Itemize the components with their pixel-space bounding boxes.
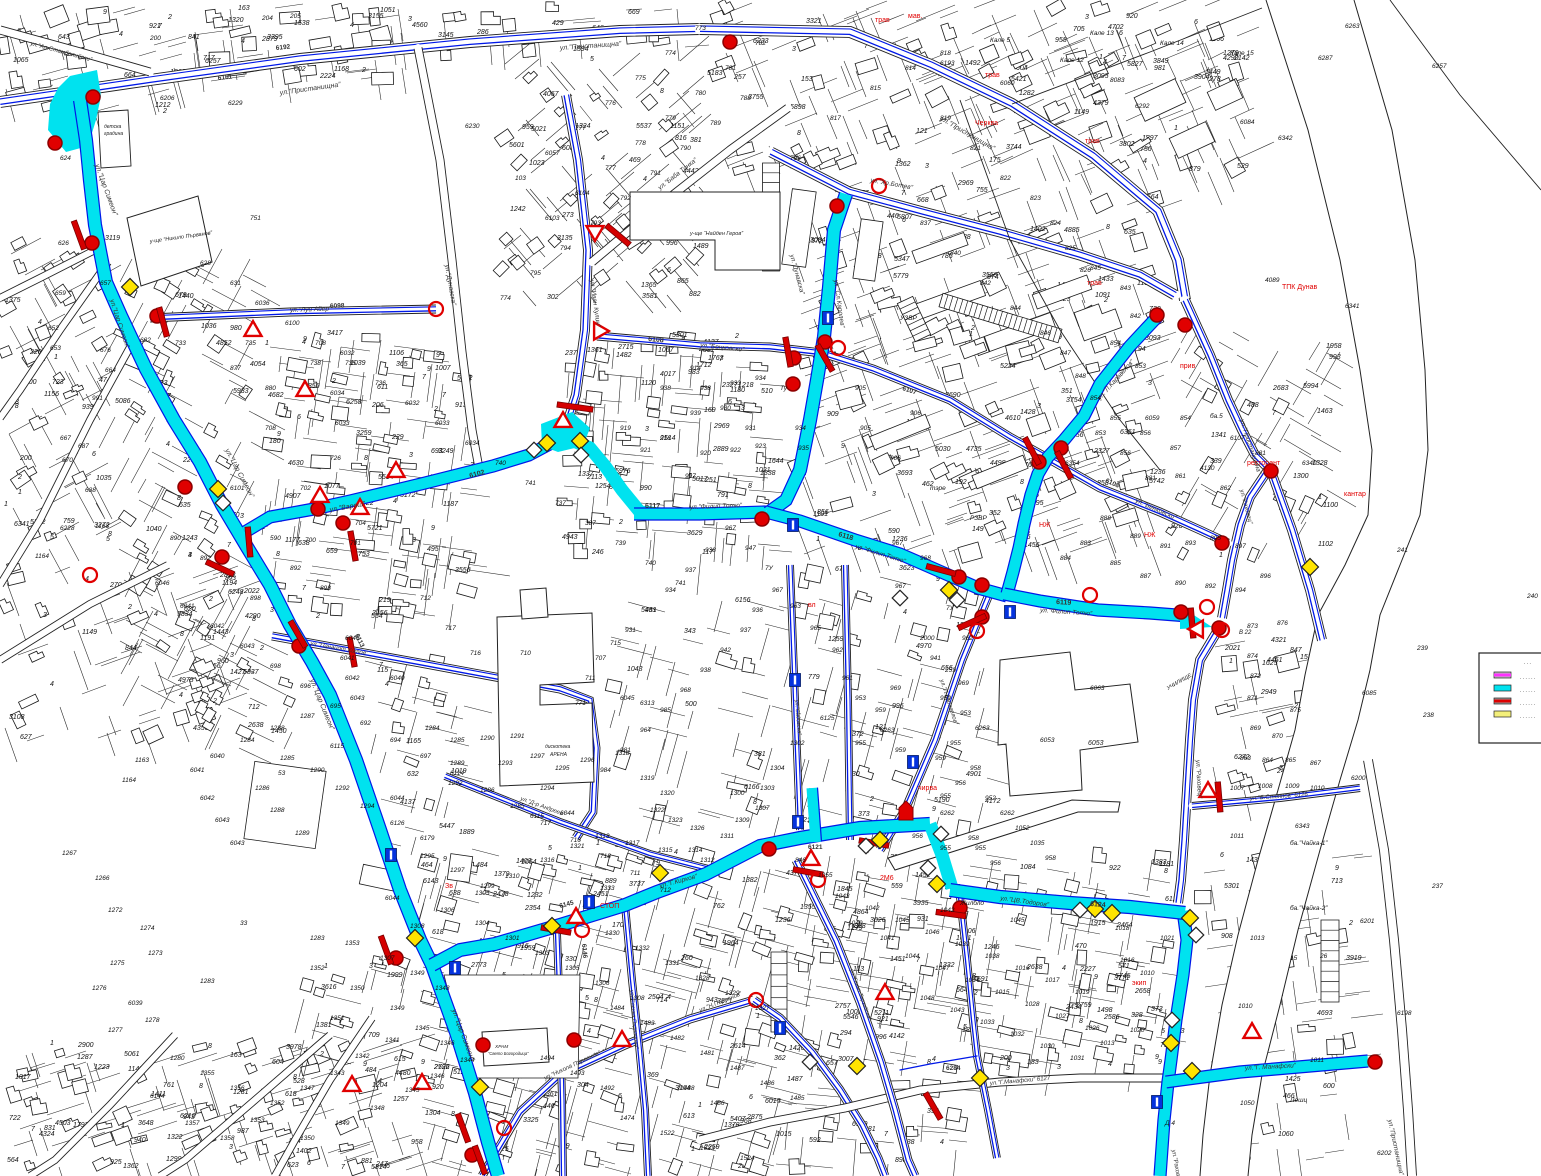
svg-text:3616: 3616 <box>321 984 337 991</box>
svg-text:1356: 1356 <box>230 1085 245 1092</box>
svg-text:6341: 6341 <box>1345 303 1360 310</box>
svg-text:2773: 2773 <box>470 962 487 969</box>
svg-text:3: 3 <box>1085 14 1089 21</box>
svg-text:822: 822 <box>1000 175 1011 182</box>
svg-text:1: 1 <box>265 340 269 347</box>
svg-text:НЖ: НЖ <box>1039 522 1051 529</box>
svg-text:1288: 1288 <box>270 725 285 732</box>
svg-text:6046: 6046 <box>345 635 360 642</box>
svg-text:1524: 1524 <box>740 1155 755 1162</box>
svg-text:1297: 1297 <box>530 753 545 760</box>
svg-text:967: 967 <box>892 540 903 547</box>
svg-text:1254: 1254 <box>595 483 611 490</box>
svg-text:4: 4 <box>1143 158 1147 165</box>
svg-text:1304: 1304 <box>475 920 490 927</box>
svg-text:1915: 1915 <box>1090 920 1106 927</box>
svg-text:241: 241 <box>1396 547 1408 554</box>
svg-text:6059: 6059 <box>1145 415 1160 422</box>
svg-text:969: 969 <box>958 680 969 687</box>
svg-text:2796: 2796 <box>433 1064 450 1071</box>
svg-text:952: 952 <box>985 795 996 802</box>
svg-text:1243: 1243 <box>182 535 198 542</box>
svg-text:9: 9 <box>932 806 936 813</box>
svg-text:1330: 1330 <box>605 930 620 937</box>
svg-text:722: 722 <box>9 1115 21 1122</box>
svg-text:1425: 1425 <box>1285 1076 1301 1083</box>
svg-text:2715: 2715 <box>617 344 634 351</box>
svg-text:695: 695 <box>330 703 341 710</box>
svg-text:4630: 4630 <box>288 460 304 467</box>
svg-text:906: 906 <box>910 410 921 417</box>
svg-text:у-ще “Найден Геров”: у-ще “Найден Геров” <box>689 230 744 237</box>
svg-text:8: 8 <box>1020 479 1024 486</box>
svg-text:708: 708 <box>265 425 276 432</box>
svg-text:343: 343 <box>684 628 696 635</box>
svg-text:955: 955 <box>950 740 961 747</box>
svg-text:328: 328 <box>1131 1012 1143 1019</box>
svg-text:4067: 4067 <box>543 91 560 98</box>
svg-text:718: 718 <box>600 853 611 860</box>
svg-text:180: 180 <box>269 438 281 445</box>
svg-text:864: 864 <box>1262 757 1273 764</box>
svg-text:3: 3 <box>741 405 745 412</box>
svg-text:6098: 6098 <box>330 302 345 310</box>
svg-text:856: 856 <box>1140 430 1151 437</box>
svg-text:955: 955 <box>940 845 951 852</box>
svg-text:5546: 5546 <box>843 1014 859 1021</box>
svg-text:4324: 4324 <box>39 1131 55 1138</box>
svg-text:981: 981 <box>620 747 631 754</box>
svg-text:1: 1 <box>1318 494 1322 501</box>
svg-text:697: 697 <box>420 753 431 760</box>
svg-text:6045: 6045 <box>620 695 635 702</box>
svg-text:6: 6 <box>92 451 96 458</box>
svg-text:1485: 1485 <box>790 1095 805 1102</box>
svg-text:5061: 5061 <box>124 1051 140 1058</box>
svg-text:500: 500 <box>685 701 697 708</box>
svg-text:967: 967 <box>725 525 736 532</box>
svg-text:6206: 6206 <box>160 95 175 102</box>
svg-text:963: 963 <box>790 603 801 610</box>
svg-text:1010: 1010 <box>1238 1003 1253 1010</box>
svg-text:2586: 2586 <box>1103 1014 1120 1021</box>
svg-text:ба.”Чайка-2”: ба.”Чайка-2” <box>1290 904 1328 912</box>
svg-text:ба.5: ба.5 <box>1210 412 1223 420</box>
svg-text:6: 6 <box>297 414 301 421</box>
svg-text:712: 712 <box>248 704 260 711</box>
svg-text:372: 372 <box>852 731 864 738</box>
svg-text:632: 632 <box>407 771 419 778</box>
svg-text:2: 2 <box>127 604 132 611</box>
svg-text:906: 906 <box>890 455 901 462</box>
svg-text:1164: 1164 <box>35 553 49 560</box>
svg-text:1362: 1362 <box>123 1163 139 1170</box>
svg-text:791: 791 <box>650 170 661 177</box>
svg-text:3754: 3754 <box>1066 397 1082 404</box>
svg-text:1322: 1322 <box>167 1134 183 1141</box>
svg-text:3693: 3693 <box>897 470 913 477</box>
svg-text:1288: 1288 <box>270 807 285 814</box>
svg-text:2638: 2638 <box>247 722 264 729</box>
svg-text:984: 984 <box>600 767 611 774</box>
svg-text:6039: 6039 <box>128 1000 143 1007</box>
svg-text:330: 330 <box>565 956 577 963</box>
svg-text:883: 883 <box>1080 540 1091 547</box>
svg-text:955: 955 <box>855 740 866 747</box>
svg-text:958: 958 <box>1045 855 1056 862</box>
svg-text:ул.”Луи Айер”: ул.”Луи Айер” <box>289 305 332 315</box>
svg-text:237: 237 <box>1431 883 1443 890</box>
svg-text:1106: 1106 <box>389 350 404 357</box>
svg-text:469: 469 <box>629 157 641 164</box>
svg-text:6124: 6124 <box>1090 901 1106 909</box>
svg-text:1345: 1345 <box>405 1087 420 1094</box>
svg-text:897: 897 <box>1235 543 1246 550</box>
svg-text:887: 887 <box>1140 573 1151 580</box>
svg-text:510: 510 <box>761 388 773 395</box>
svg-text:837: 837 <box>920 220 931 227</box>
svg-text:1048: 1048 <box>920 995 935 1002</box>
svg-text:933: 933 <box>730 380 741 387</box>
svg-text:. . .: . . . <box>1524 660 1531 666</box>
svg-text:8: 8 <box>364 455 368 462</box>
svg-text:2327: 2327 <box>1093 448 1111 455</box>
svg-text:1019: 1019 <box>1075 989 1090 996</box>
svg-text:1236: 1236 <box>775 917 791 924</box>
svg-text:938: 938 <box>700 667 711 674</box>
svg-text:1365: 1365 <box>641 282 657 289</box>
svg-text:953: 953 <box>855 695 866 702</box>
svg-text:1257: 1257 <box>393 1096 410 1103</box>
svg-text:1295: 1295 <box>555 765 570 772</box>
svg-text:3581: 3581 <box>642 293 658 300</box>
svg-text:8: 8 <box>276 551 280 558</box>
svg-text:чирва: чирва <box>918 785 937 792</box>
svg-text:615: 615 <box>394 1056 406 1063</box>
svg-text:6210: 6210 <box>180 1113 196 1120</box>
svg-text:2: 2 <box>167 14 172 21</box>
svg-text:824: 824 <box>1050 220 1061 227</box>
svg-text:854: 854 <box>1180 415 1191 422</box>
svg-text:4: 4 <box>940 1139 944 1146</box>
svg-text:1008: 1008 <box>1258 783 1273 790</box>
svg-text:1463: 1463 <box>1317 408 1333 415</box>
svg-text:1300: 1300 <box>1293 473 1309 480</box>
svg-text:877: 877 <box>230 365 241 372</box>
svg-text:898: 898 <box>250 595 261 602</box>
svg-text:2000: 2000 <box>919 635 935 642</box>
svg-text:1290: 1290 <box>310 767 325 774</box>
svg-text:6101: 6101 <box>230 485 245 492</box>
svg-text:1320: 1320 <box>660 790 675 797</box>
svg-text:733: 733 <box>175 340 186 347</box>
svg-text:1487: 1487 <box>730 1065 745 1072</box>
svg-text:816: 816 <box>675 135 687 142</box>
svg-text:6103: 6103 <box>545 215 560 222</box>
svg-text:470: 470 <box>1075 943 1087 950</box>
svg-text:3629: 3629 <box>687 530 703 537</box>
svg-text:6229: 6229 <box>228 100 243 107</box>
svg-text:8083: 8083 <box>1110 77 1125 84</box>
svg-text:846: 846 <box>795 857 806 864</box>
svg-text:1889: 1889 <box>459 829 475 836</box>
svg-text:2: 2 <box>433 406 438 413</box>
svg-text:779: 779 <box>808 674 820 681</box>
svg-text:1489: 1489 <box>693 243 709 250</box>
svg-text:2: 2 <box>208 596 213 603</box>
svg-text:777: 777 <box>605 165 616 172</box>
svg-text:4: 4 <box>674 849 678 856</box>
svg-text:1328: 1328 <box>695 975 710 982</box>
svg-text:844: 844 <box>125 645 137 652</box>
svg-text:6119: 6119 <box>1056 599 1072 607</box>
svg-text:707: 707 <box>595 655 606 662</box>
svg-text:1043: 1043 <box>835 893 850 900</box>
svg-text:3: 3 <box>369 963 373 970</box>
svg-text:893: 893 <box>1185 540 1196 547</box>
svg-text:6257: 6257 <box>205 58 222 65</box>
svg-text:853: 853 <box>1135 363 1146 370</box>
svg-text:1: 1 <box>578 865 582 872</box>
svg-text:1353: 1353 <box>345 940 360 947</box>
svg-text:863: 863 <box>1240 755 1251 762</box>
svg-text:735: 735 <box>345 360 356 367</box>
svg-text:2969: 2969 <box>957 180 974 187</box>
svg-text:1311: 1311 <box>720 833 734 840</box>
svg-text:3: 3 <box>43 612 47 619</box>
svg-text:9: 9 <box>427 366 431 373</box>
svg-text:6144: 6144 <box>150 1093 165 1100</box>
svg-text:1043: 1043 <box>950 1007 965 1014</box>
svg-text:875: 875 <box>1290 707 1301 714</box>
svg-text:921: 921 <box>877 1016 889 1023</box>
svg-text:373: 373 <box>858 811 870 818</box>
svg-text:1348: 1348 <box>435 985 450 992</box>
svg-text:1021: 1021 <box>1160 935 1175 942</box>
svg-text:5994: 5994 <box>1303 383 1319 390</box>
svg-text:169: 169 <box>704 407 716 414</box>
svg-text:623: 623 <box>287 1162 299 1169</box>
svg-text:825: 825 <box>1065 245 1076 252</box>
svg-text:1295: 1295 <box>420 853 435 860</box>
svg-text:1035: 1035 <box>96 475 112 482</box>
svg-text:3744: 3744 <box>1006 144 1022 151</box>
svg-text:893: 893 <box>225 575 236 582</box>
svg-text:668: 668 <box>917 197 929 204</box>
svg-text:4089: 4089 <box>1265 277 1280 284</box>
svg-text:775: 775 <box>635 75 646 82</box>
svg-text:1319: 1319 <box>640 775 655 782</box>
svg-text:. . . . . .: . . . . . . <box>1520 675 1535 681</box>
svg-text:2022: 2022 <box>243 588 260 595</box>
svg-text:. . . . . .: . . . . . . <box>1520 714 1535 720</box>
svg-text:3249: 3249 <box>438 448 454 455</box>
svg-text:705: 705 <box>1073 26 1085 33</box>
svg-text:1451: 1451 <box>890 956 906 963</box>
svg-text:942: 942 <box>720 647 731 654</box>
svg-text:894: 894 <box>1235 587 1246 594</box>
svg-text:922: 922 <box>730 447 741 454</box>
svg-text:1007: 1007 <box>435 365 452 372</box>
svg-text:1345: 1345 <box>415 1025 430 1032</box>
svg-text:723: 723 <box>52 379 64 386</box>
svg-text:635: 635 <box>1124 229 1136 236</box>
svg-text:1232: 1232 <box>527 892 543 899</box>
svg-text:240: 240 <box>1526 593 1538 600</box>
svg-text:704: 704 <box>355 520 366 527</box>
svg-text:6: 6 <box>902 217 906 224</box>
svg-text:968: 968 <box>920 555 931 562</box>
svg-text:484: 484 <box>476 862 488 869</box>
svg-text:888: 888 <box>1100 515 1111 522</box>
svg-text:7У: 7У <box>765 565 774 572</box>
svg-text:6200: 6200 <box>1351 775 1366 782</box>
svg-text:1030: 1030 <box>1040 1043 1055 1050</box>
svg-text:1349: 1349 <box>335 1120 350 1127</box>
svg-text:. . . . . .: . . . . . . <box>1520 688 1535 694</box>
svg-text:740: 740 <box>645 560 656 567</box>
svg-text:934: 934 <box>665 587 676 594</box>
svg-text:6043: 6043 <box>240 643 255 650</box>
svg-text:937: 937 <box>740 627 751 634</box>
svg-text:6202: 6202 <box>1377 1150 1392 1157</box>
svg-text:854: 854 <box>1090 395 1101 402</box>
svg-text:861: 861 <box>1175 473 1186 480</box>
svg-text:880: 880 <box>265 385 276 392</box>
svg-text:774: 774 <box>665 50 676 57</box>
svg-text:873: 873 <box>1247 623 1258 630</box>
svg-text:3026: 3026 <box>870 917 886 924</box>
svg-text:1483: 1483 <box>640 1020 655 1027</box>
svg-text:1289: 1289 <box>450 760 465 767</box>
svg-text:5827: 5827 <box>1127 61 1144 68</box>
svg-text:5: 5 <box>548 845 552 852</box>
svg-text:934: 934 <box>795 425 806 432</box>
svg-text:712: 712 <box>420 595 431 602</box>
svg-text:4: 4 <box>166 441 170 448</box>
svg-text:925: 925 <box>110 1159 122 1166</box>
svg-text:3771: 3771 <box>1114 975 1130 982</box>
svg-text:219: 219 <box>378 597 391 604</box>
svg-text:1313: 1313 <box>595 833 610 840</box>
svg-text:4735: 4735 <box>966 446 982 453</box>
svg-text:6104: 6104 <box>575 190 590 197</box>
svg-text:1: 1 <box>698 1102 702 1109</box>
svg-text:ресторант: ресторант <box>1247 460 1281 467</box>
svg-text:3155: 3155 <box>368 13 384 20</box>
svg-text:365: 365 <box>396 361 408 368</box>
svg-text:1023: 1023 <box>529 160 545 167</box>
svg-text:947: 947 <box>745 545 756 552</box>
svg-text:927: 927 <box>685 473 696 480</box>
svg-text:1382: 1382 <box>742 877 758 884</box>
svg-text:961: 961 <box>842 675 853 682</box>
svg-text:1: 1 <box>18 489 22 496</box>
svg-text:1020: 1020 <box>1130 1027 1145 1034</box>
svg-text:741: 741 <box>525 480 536 487</box>
svg-text:710: 710 <box>520 650 531 657</box>
svg-text:857: 857 <box>1170 445 1181 452</box>
svg-text:1350: 1350 <box>300 1135 315 1142</box>
svg-text:прив: прив <box>1180 363 1196 370</box>
svg-text:4017: 4017 <box>660 371 677 378</box>
svg-text:3: 3 <box>409 452 413 459</box>
svg-text:205: 205 <box>289 13 301 20</box>
svg-text:991: 991 <box>92 395 103 402</box>
svg-text:876: 876 <box>1277 620 1288 627</box>
svg-text:843: 843 <box>1120 285 1131 292</box>
svg-text:1346: 1346 <box>430 1073 445 1080</box>
svg-text:4: 4 <box>1108 1061 1112 1068</box>
svg-text:604: 604 <box>272 1059 284 1066</box>
svg-text:773: 773 <box>695 25 706 32</box>
svg-text:6263: 6263 <box>1345 23 1360 30</box>
svg-text:6041: 6041 <box>180 603 195 610</box>
svg-text:891: 891 <box>1160 543 1171 550</box>
svg-text:3978: 3978 <box>286 1044 302 1051</box>
svg-text:1355: 1355 <box>200 1070 215 1077</box>
svg-text:6043: 6043 <box>350 695 365 702</box>
svg-text:1305: 1305 <box>565 965 580 972</box>
svg-text:788: 788 <box>740 95 751 102</box>
svg-text:1052: 1052 <box>1015 825 1030 832</box>
svg-text:774: 774 <box>500 295 511 302</box>
svg-text:841: 841 <box>188 34 200 41</box>
svg-text:4: 4 <box>667 994 671 1001</box>
svg-text:981: 981 <box>1154 65 1166 72</box>
svg-text:1091: 1091 <box>1095 292 1111 299</box>
svg-text:1290: 1290 <box>480 735 495 742</box>
svg-text:8: 8 <box>594 997 598 1004</box>
svg-text:3919: 3919 <box>1346 955 1362 962</box>
svg-text:278: 278 <box>1208 76 1221 83</box>
svg-text:5: 5 <box>106 536 110 543</box>
svg-text:935: 935 <box>798 445 809 452</box>
svg-text:РЗВР: РЗВР <box>970 515 988 522</box>
svg-text:2: 2 <box>1348 920 1353 927</box>
svg-text:1060: 1060 <box>1278 1131 1294 1138</box>
svg-text:930: 930 <box>720 405 731 412</box>
svg-text:881: 881 <box>1145 475 1156 482</box>
svg-text:796: 796 <box>790 155 801 162</box>
svg-text:1443: 1443 <box>213 629 229 636</box>
svg-text:1361: 1361 <box>587 347 603 354</box>
svg-text:6117: 6117 <box>645 503 660 510</box>
svg-text:3: 3 <box>645 426 649 433</box>
svg-text:643: 643 <box>58 34 70 41</box>
svg-text:1428: 1428 <box>1020 409 1036 416</box>
svg-text:1: 1 <box>969 331 973 338</box>
svg-text:635: 635 <box>179 502 191 509</box>
svg-text:5: 5 <box>1161 1028 1165 1035</box>
svg-text:4693: 4693 <box>1317 1010 1333 1017</box>
svg-text:339: 339 <box>1210 458 1222 465</box>
svg-text:2: 2 <box>869 796 874 803</box>
svg-text:6041: 6041 <box>340 655 355 662</box>
svg-text:103: 103 <box>515 175 526 182</box>
svg-text:1163: 1163 <box>135 757 149 764</box>
svg-text:529: 529 <box>1237 163 1249 170</box>
svg-text:1149: 1149 <box>1074 109 1089 116</box>
svg-text:1181: 1181 <box>1159 861 1174 868</box>
svg-text:273: 273 <box>561 212 574 219</box>
svg-text:1044: 1044 <box>905 953 920 960</box>
svg-text:709: 709 <box>368 1032 380 1039</box>
svg-text:4: 4 <box>119 31 123 38</box>
svg-text:638: 638 <box>449 890 461 897</box>
svg-text:1300: 1300 <box>730 790 745 797</box>
svg-text:659: 659 <box>326 548 338 555</box>
